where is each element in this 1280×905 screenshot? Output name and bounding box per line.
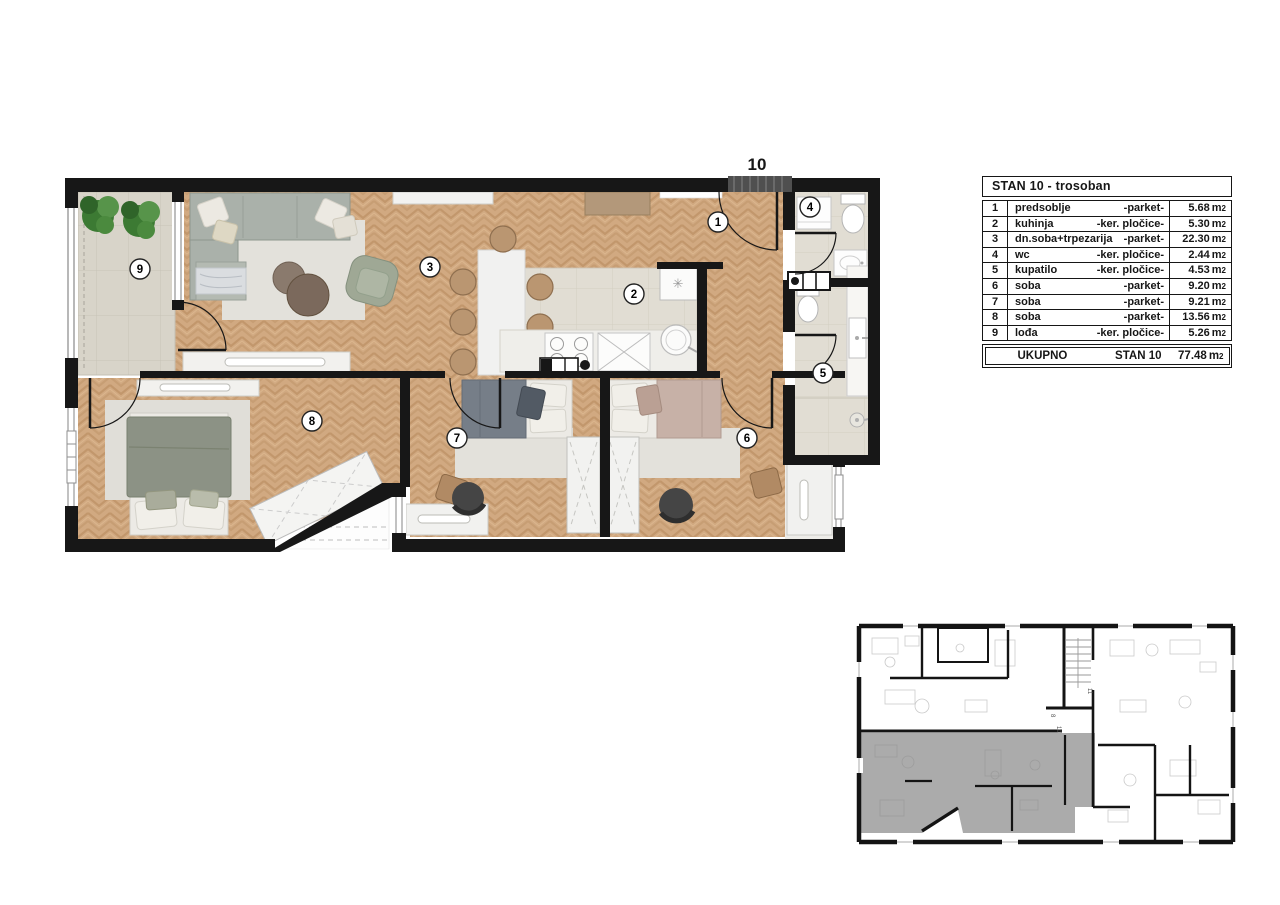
room-name: kupatilo (1015, 263, 1057, 279)
desk-chair (452, 482, 484, 514)
room-name: wc (1015, 248, 1030, 264)
table-row: 3 dn.soba+trpezarija-parket- 22.30m2 (983, 232, 1231, 248)
room-number: 2 (983, 217, 1008, 233)
floor-type: -parket- (1120, 279, 1164, 295)
room-badge-6: 6 (737, 428, 757, 448)
room-badge-5: 5 (813, 363, 833, 383)
closet (607, 437, 639, 533)
room-number: 5 (983, 263, 1008, 279)
room-badge-3: 3 (420, 257, 440, 277)
table-row: 8 soba-parket- 13.56m2 (983, 310, 1231, 326)
room-number: 8 (983, 310, 1008, 326)
double-bed (127, 413, 231, 535)
room-number: 6 (983, 279, 1008, 295)
loggia-glass-wall (65, 208, 78, 358)
svg-text:6: 6 (744, 433, 750, 445)
room-name: dn.soba+trpezarija (1015, 232, 1113, 248)
entrance-label: 10 (748, 155, 767, 174)
cabinet (585, 192, 650, 215)
room-area: 5.68m2 (1169, 201, 1231, 217)
total-area: 77.48m2 (1167, 348, 1229, 366)
sideboard-handle (225, 358, 325, 366)
legend-title: STAN 10 - trosoban (982, 176, 1232, 197)
room-area: 4.53m2 (1169, 263, 1231, 279)
room-name: lođa (1015, 326, 1038, 342)
key-plan-label-11: 11 (1086, 688, 1092, 695)
bedroom8-window (65, 408, 78, 506)
room-number: 1 (983, 201, 1008, 217)
svg-text:2: 2 (631, 289, 637, 301)
floor-type: -parket- (1120, 295, 1164, 311)
room-area: 2.44m2 (1169, 248, 1231, 264)
hall-shelf (660, 192, 722, 198)
room-badge-8: 8 (302, 411, 322, 431)
key-plan-label-10: 10 (1055, 726, 1061, 733)
table-row: 4 wc-ker. pločice- 2.44m2 (983, 248, 1231, 264)
room-name: kuhinja (1015, 217, 1054, 233)
floor-type: -parket- (1120, 201, 1164, 217)
room-name: soba (1015, 310, 1041, 326)
throw-blanket (196, 268, 246, 294)
table-row: 7 soba-parket- 9.21m2 (983, 295, 1231, 311)
svg-text:8: 8 (309, 416, 316, 428)
entrance-sill (728, 176, 792, 192)
floor-plan-svg: ✳ (0, 0, 1280, 905)
coffee-table (287, 274, 329, 316)
floor-type: -ker. pločice- (1093, 263, 1164, 279)
toilet-icon (841, 194, 865, 233)
table-row: 6 soba-parket- 9.20m2 (983, 279, 1231, 295)
single-bed (462, 380, 572, 438)
desk-chair (659, 488, 693, 522)
desk (787, 458, 832, 535)
room-area: 5.26m2 (1169, 326, 1231, 342)
bedroom7-window (392, 497, 406, 533)
radiator-icon (835, 475, 843, 519)
table-row: 5 kupatilo-ker. pločice- 4.53m2 (983, 263, 1231, 279)
room-name: soba (1015, 279, 1041, 295)
tv-console (393, 192, 493, 204)
total-unit: STAN 10 (1115, 348, 1161, 366)
key-plan: 8 10 11 (855, 622, 1237, 846)
toilet-icon (797, 287, 819, 322)
room-badge-1: 1 (708, 212, 728, 232)
svg-text:9: 9 (137, 264, 143, 276)
room-number: 7 (983, 295, 1008, 311)
svg-text:5: 5 (820, 368, 827, 380)
sink (598, 333, 650, 371)
glass-partition (172, 202, 184, 300)
room-badge-7: 7 (447, 428, 467, 448)
floor-type: -parket- (1120, 310, 1164, 326)
floor-type: -parket- (1120, 232, 1164, 248)
floor-type: -ker. pločice- (1093, 326, 1164, 342)
floor-type: -ker. pločice- (1093, 217, 1164, 233)
legend-total: UKUPNOSTAN 10 77.48m2 (982, 344, 1232, 368)
room-badge-9: 9 (130, 259, 150, 279)
room-number: 3 (983, 232, 1008, 248)
floor-plan-page: ✳ (0, 0, 1280, 905)
room-name: predsoblje (1015, 201, 1071, 217)
room-number: 4 (983, 248, 1008, 264)
bedroom6-window (833, 467, 845, 527)
svg-text:4: 4 (807, 202, 814, 214)
room-name: soba (1015, 295, 1041, 311)
single-bed (607, 380, 721, 438)
room-number: 9 (983, 326, 1008, 342)
svg-text:7: 7 (454, 433, 460, 445)
room-badge-2: 2 (624, 284, 644, 304)
table-row: 9 lođa-ker. pločice- 5.26m2 (983, 326, 1231, 341)
room-area: 22.30m2 (1169, 232, 1231, 248)
room-area: 5.30m2 (1169, 217, 1231, 233)
table-row: 2 kuhinja-ker. pločice- 5.30m2 (983, 217, 1231, 233)
total-label: UKUPNO (1018, 348, 1068, 366)
legend-table: STAN 10 - trosoban 1 predsoblje-parket- … (982, 176, 1232, 368)
svg-text:1: 1 (715, 217, 722, 229)
room-area: 9.20m2 (1169, 279, 1231, 295)
svg-text:✳: ✳ (673, 276, 684, 291)
fridge-icon: ✳ (660, 266, 697, 300)
table-row: 1 predsoblje-parket- 5.68m2 (983, 201, 1231, 217)
shaft (788, 272, 830, 290)
svg-text:3: 3 (427, 262, 433, 274)
room-area: 13.56m2 (1169, 310, 1231, 326)
highlighted-unit (860, 733, 1095, 833)
legend-rows: 1 predsoblje-parket- 5.68m2 2 kuhinja-ke… (982, 200, 1232, 341)
bath-sink-icon (849, 318, 868, 358)
room-badge-4: 4 (800, 197, 820, 217)
room-area: 9.21m2 (1169, 295, 1231, 311)
floor-type: -ker. pločice- (1093, 248, 1164, 264)
